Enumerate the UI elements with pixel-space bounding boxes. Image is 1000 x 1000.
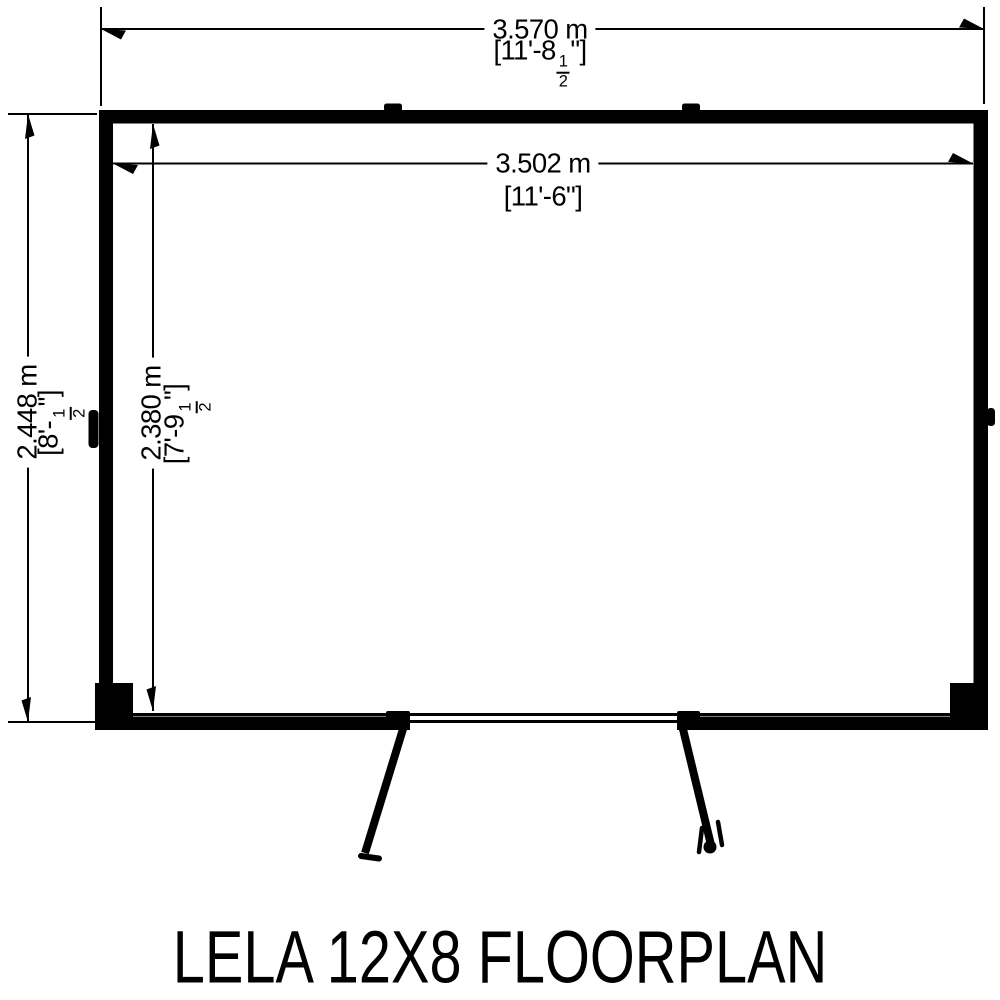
inner-depth-imperial-label: [7'-912"] [161,384,216,464]
bottom-wall-left [99,717,410,731]
outer-depth-imperial-label: [8'-12"] [35,390,90,456]
top-wall-stud-marker-left [384,104,402,112]
door-leaf-right [683,729,711,845]
page-title: LELA 12X8 FLOORPLAN [173,915,828,1000]
left-wall-stud-marker [89,410,99,448]
left-wall [99,110,113,730]
fraction: 12 [178,401,216,414]
bottom-corner-block-left [95,683,133,730]
arrowhead [22,697,32,722]
imperial-suffix: "] [159,384,190,400]
imperial-prefix: [11'-8 [493,35,555,66]
door-handle-prong-right [718,822,722,845]
right-wall [974,110,989,730]
outer-width-imperial-label: [11'-812"] [493,37,586,92]
fraction-denominator: 2 [559,74,568,91]
fraction-numerator: 1 [52,407,72,420]
bottom-corner-block-right [950,683,988,730]
bottom-wall-right [677,717,988,731]
fraction-denominator: 2 [72,409,89,418]
door-handle-prong-left [699,828,702,852]
fraction-numerator: 1 [178,401,198,414]
imperial-suffix: "] [570,35,586,66]
inner-width-metric-label: 3.502 m [487,149,598,177]
arrowhead [147,686,157,711]
top-wall [99,110,988,124]
inner-width-imperial-label: [11'-6"] [504,182,583,210]
door-leaf-left [365,729,403,853]
arrowhead [113,164,138,175]
right-wall-stud-marker [987,408,995,426]
fraction-denominator: 2 [198,403,215,412]
imperial-suffix: "] [33,390,64,406]
fraction-numerator: 1 [557,54,570,74]
arrowhead [101,29,126,40]
door-leaves [361,729,722,859]
door-leaf-left-end [361,856,379,859]
fraction: 12 [557,54,570,92]
arrowhead [959,19,984,30]
imperial-prefix: [7'-9 [159,415,190,465]
imperial-prefix: [8'- [33,421,64,456]
arrowhead [150,124,160,149]
fraction: 12 [52,407,90,420]
arrowhead [25,114,35,139]
arrowhead [948,153,973,164]
top-wall-stud-marker-right [682,104,700,112]
door-handle-base [704,841,717,854]
floorplan-page: 3.570 m [11'-812"] 3.502 m [11'-6"] 2.44… [0,0,1000,1000]
